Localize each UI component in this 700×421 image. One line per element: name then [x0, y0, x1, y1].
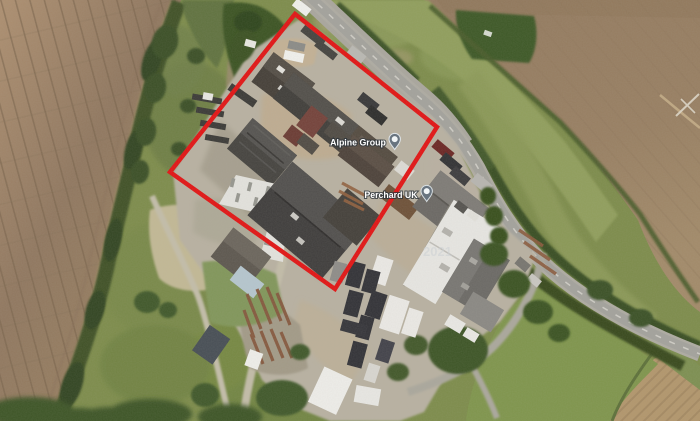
svg-text:Alpine Group: Alpine Group — [330, 138, 386, 148]
svg-text:Perchard UK: Perchard UK — [364, 190, 418, 200]
